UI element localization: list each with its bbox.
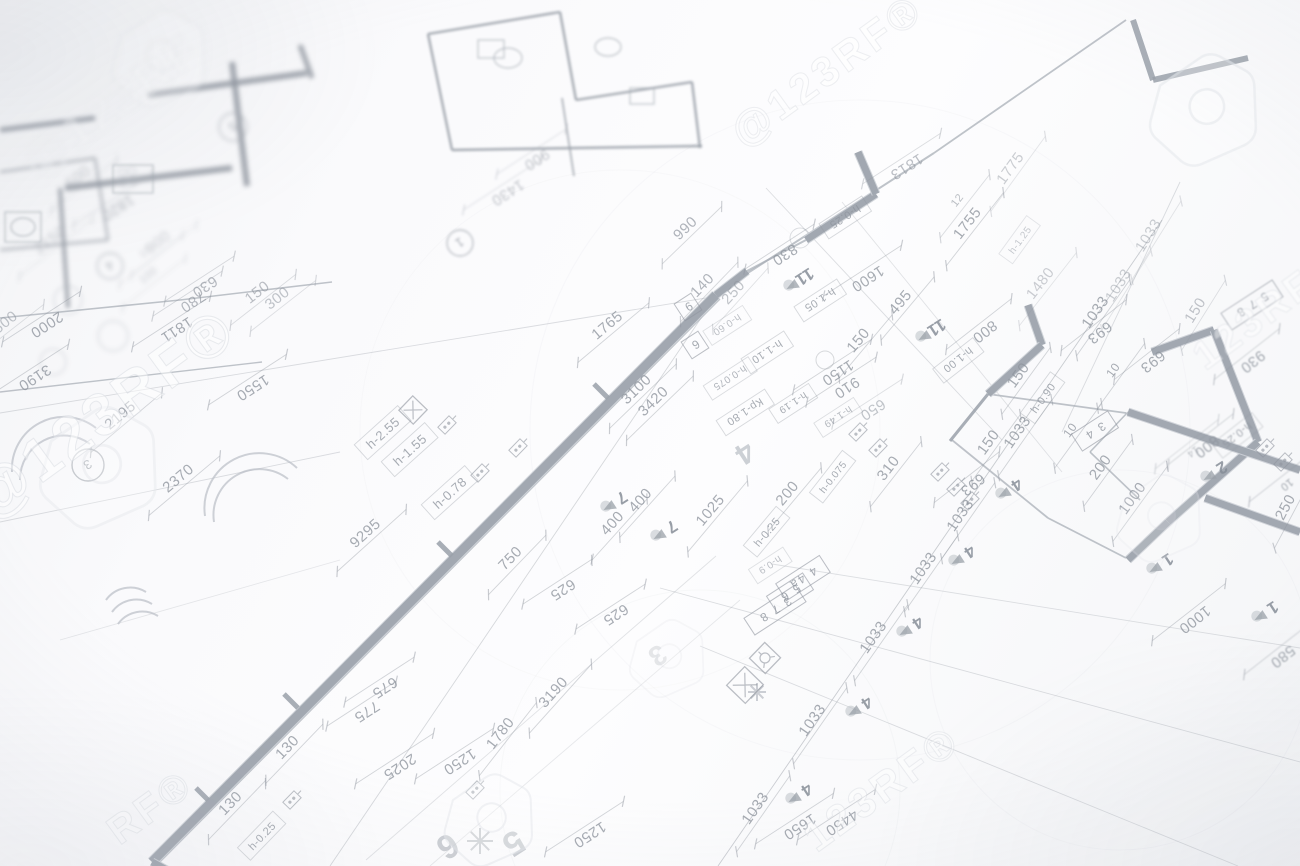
wall-thin: [934, 20, 1126, 153]
dimension-text: 10: [1278, 476, 1296, 494]
dimension-tick: [731, 846, 742, 857]
dimension-text: h-0.60: [710, 311, 742, 337]
axis-bubble-number: 1: [453, 234, 467, 251]
dimension-tick: [1239, 669, 1250, 680]
dimension-label: Кр-1.80: [716, 389, 774, 436]
dimension-tick: [38, 299, 49, 310]
dimension-text: 990: [670, 213, 701, 244]
wall: [452, 146, 702, 150]
dimension-tick: [788, 758, 799, 769]
dimension-text: h-1.05: [802, 285, 837, 314]
legend-box-text: 6: [688, 337, 703, 353]
dimension-tick: [1040, 131, 1051, 142]
dimension-tick: [1127, 434, 1138, 445]
dimension-tick: [63, 339, 74, 350]
socket-symbol-icon: [509, 435, 531, 457]
dimension-tick: [281, 349, 292, 360]
dimension-tick: [1107, 536, 1118, 547]
socket-lead: [524, 439, 527, 443]
construction-arc: [930, 470, 1300, 850]
socket-dot: [1261, 448, 1266, 453]
legend-box: 6: [681, 331, 709, 359]
dimension-text: h-0.075: [818, 459, 850, 495]
wall: [576, 82, 692, 100]
dimension-text: 800: [969, 317, 1000, 347]
dimension-tick: [929, 271, 940, 282]
socket-symbol-icon: [471, 460, 493, 482]
layer-watermarks: @123RF®@123RF®123RF®RF®: [0, 0, 1273, 866]
dimension-label: h-1.49: [814, 397, 863, 437]
dimension-text: 580: [1267, 642, 1298, 672]
dimension-label: h-0.9: [748, 547, 792, 584]
dimension-tick: [126, 270, 137, 281]
dimension-label: h-0.78: [421, 466, 478, 520]
watermark-text: RF®: [99, 762, 202, 853]
axis-bubble-number: 4: [103, 257, 117, 274]
dimension-text: 250: [718, 277, 748, 308]
watermark-brand-text: @123RF: [12, 23, 210, 187]
dimension-tick: [1071, 247, 1082, 258]
dimension-tick: [935, 232, 946, 243]
dimension-label: 2025: [350, 728, 446, 801]
dimension-tick: [339, 697, 350, 708]
socket-symbol-icon: [931, 459, 953, 481]
dimension-tick: [618, 796, 629, 807]
dimension-label: 3190: [513, 649, 597, 739]
fixture-circle: [128, 167, 136, 175]
dimension-tick: [994, 446, 1005, 457]
dimension-label: 580: [1239, 618, 1300, 691]
dimension-text: 200: [1086, 452, 1115, 483]
socket-dot: [476, 473, 481, 478]
dimension-tick: [68, 219, 79, 230]
socket-dot: [939, 468, 944, 473]
wall: [560, 12, 576, 100]
socket-lead: [864, 423, 867, 427]
dimension-label: 200: [752, 453, 827, 536]
socket-dot: [291, 796, 296, 801]
fan-box: [749, 642, 780, 673]
dimension-tick: [682, 546, 693, 557]
dimension-tick: [784, 770, 795, 781]
dimension-tick: [143, 510, 154, 521]
socket-dot: [288, 800, 293, 805]
dimension-tick: [985, 206, 996, 217]
dimension-label: 900: [117, 208, 202, 281]
socket-dot: [517, 444, 522, 449]
wall: [95, 158, 108, 240]
dimension-tick: [1147, 635, 1158, 646]
axis-bubble: 1: [447, 230, 473, 256]
axis-bubble: 4: [97, 253, 123, 279]
dimension-tick: [428, 728, 439, 739]
dimension-tick: [111, 154, 122, 165]
dimension-label: h-0.075: [703, 357, 757, 400]
flag-number: 4: [908, 612, 927, 633]
wall: [692, 82, 700, 148]
dimension-text: 150: [843, 325, 873, 356]
door-swing-arc: [112, 600, 152, 612]
socket-dot: [443, 425, 448, 430]
dimension-tick: [517, 599, 528, 610]
socket-lead: [1271, 439, 1274, 443]
dimension-tick: [217, 266, 228, 277]
socket-dot: [874, 448, 879, 453]
layer-construction-lines: [0, 100, 1300, 866]
dimension-label: 1765: [563, 287, 654, 369]
flag-marker: 1: [1248, 597, 1282, 628]
construction-arc: [816, 351, 834, 369]
dimension-tick: [191, 219, 202, 230]
dimension-label: h-1.25: [999, 216, 1040, 264]
socket-lead: [946, 463, 949, 467]
dimension-tick: [875, 334, 886, 345]
dimension-label: h-0.25: [237, 811, 285, 860]
fixture-ellipse: [595, 38, 621, 56]
dimension-text: 200: [772, 478, 802, 509]
dimension-label: 1780: [463, 688, 542, 781]
switch-symbol-icon: [399, 396, 427, 424]
flag-number: 4: [797, 779, 816, 800]
wall: [428, 12, 560, 34]
legend-box-text: 9: [681, 299, 696, 315]
socket-symbol-icon: [438, 412, 460, 434]
dimension-tick: [750, 838, 761, 849]
dimension-label: 1000: [1147, 578, 1240, 657]
legend-box: 3 4: [1072, 411, 1119, 451]
dimension-tick: [897, 374, 908, 385]
dimension-tick: [996, 409, 1007, 420]
dimension-tick: [117, 302, 128, 313]
dimension-text: 150: [1004, 360, 1033, 391]
switch-x: [733, 673, 758, 698]
dimension-line: [662, 207, 721, 264]
dimension-text: 775: [351, 697, 383, 726]
socket-dot: [479, 469, 484, 474]
dimension-tick: [410, 773, 421, 784]
dimension-tick: [849, 675, 860, 686]
flag-number: 4: [857, 692, 876, 713]
flag-marker: 11: [780, 264, 818, 298]
socket-dot: [514, 448, 519, 453]
construction-line: [842, 202, 1062, 472]
dimension-tick: [941, 344, 952, 355]
dimension-tick: [75, 286, 86, 297]
socket-dot: [877, 444, 882, 449]
fixture-circle: [98, 321, 128, 351]
door-swing-arc: [204, 453, 297, 516]
dimension-tick: [409, 652, 420, 663]
dimension-text: 750: [495, 543, 526, 574]
dimension-text: 693: [957, 470, 988, 500]
socket-symbol-icon: [869, 435, 891, 457]
dimension-label: h-1.10: [741, 331, 794, 374]
socket-lead: [298, 791, 301, 795]
dimension-text: 250: [1272, 492, 1299, 523]
dimension-tick: [46, 205, 57, 216]
blueprint-photo: 500215010900100182045@123RF 90014301 176…: [0, 0, 1300, 866]
dimension-label: 1033: [777, 674, 853, 769]
blueprint-canvas: 500215010900100182045@123RF 90014301 176…: [0, 0, 1300, 866]
dimension-tick: [871, 352, 882, 363]
dimension-label: 3100: [594, 348, 682, 434]
wall: [562, 98, 574, 176]
wall: [594, 384, 608, 398]
watermark-brand-text: 123RF®: [794, 716, 968, 860]
dimension-tick: [640, 579, 651, 590]
socket-lead: [1289, 453, 1292, 457]
construction-line: [1062, 182, 1180, 432]
dimension-label: 310: [854, 427, 927, 512]
legend-box-text: 3 4: [1082, 419, 1109, 443]
flag-marker: 4: [842, 692, 876, 723]
dimension-tick: [1045, 342, 1056, 353]
socket-lead: [486, 464, 489, 468]
dimension-tick: [245, 326, 256, 337]
dimension-label: 990: [647, 191, 727, 270]
dimension-label: 1033: [838, 591, 914, 686]
wall: [60, 188, 68, 308]
fixture-circle: [118, 168, 126, 176]
room-number-text: 4: [728, 434, 760, 471]
dimension-text: h-1.10: [749, 337, 784, 366]
dimension-tick: [742, 475, 753, 486]
room-number: 4: [728, 434, 760, 471]
dimension-tick: [1006, 293, 1017, 304]
dimension-tick: [935, 128, 946, 139]
socket-dot: [854, 432, 859, 437]
watermark-text: @123RF: [12, 23, 210, 187]
watermark-text: @123RF®: [721, 0, 931, 156]
dimension-text: 625: [547, 575, 579, 604]
flag-marker: 7: [647, 516, 681, 547]
socket-dot: [952, 487, 957, 492]
flag-number: 7: [613, 487, 631, 508]
dimension-tick: [1220, 578, 1231, 589]
dimension-label: 9295: [322, 493, 412, 577]
dimension-tick: [350, 778, 361, 789]
dimension-text: 495: [885, 287, 915, 318]
socket-lead: [453, 416, 456, 420]
dimension-tick: [180, 253, 191, 264]
wall: [950, 394, 988, 441]
dimension-tick: [1244, 496, 1255, 507]
dimension-tick: [458, 204, 469, 215]
dimension-tick: [1139, 338, 1150, 349]
dimension-tick: [540, 846, 551, 857]
dimension-tick: [1163, 459, 1174, 470]
dimension-tick: [929, 497, 940, 508]
construction-line: [330, 299, 714, 866]
wall: [152, 862, 196, 866]
dimension-tick: [572, 357, 583, 368]
dimension-text: h-1.49: [821, 403, 853, 429]
dimension-tick: [114, 279, 125, 290]
dimension-tick: [229, 251, 240, 262]
flag-marker: 11: [912, 315, 950, 349]
watermark-camera-logo-icon: [1134, 43, 1273, 175]
wall: [858, 152, 876, 194]
flag-marker: 4: [992, 474, 1026, 505]
wall: [428, 34, 452, 150]
dimension-tick: [1078, 501, 1089, 512]
dimension-tick: [1056, 345, 1067, 356]
socket-dot: [446, 421, 451, 426]
dimension-label: 250: [1257, 463, 1300, 553]
construction-line: [700, 646, 1238, 866]
door-swing-arc: [213, 469, 288, 522]
dimension-tick: [1071, 350, 1082, 361]
dimension-tick: [1220, 275, 1231, 286]
dimension-label: 1755: [930, 178, 1009, 271]
socket-lead: [884, 439, 887, 443]
compass-asterisk-icon: [748, 683, 766, 701]
dimension-text: 600: [0, 308, 21, 338]
flag-number: 4: [1007, 474, 1026, 495]
dimension-tick: [916, 436, 927, 447]
dimension-tick: [1014, 320, 1025, 331]
fixture-ellipse: [11, 218, 35, 236]
dimension-label: 1025: [672, 466, 754, 557]
watermark-camera-logo-icon: [619, 612, 716, 704]
switch-x: [404, 401, 423, 420]
dimension-text: h-1.25: [1007, 225, 1034, 257]
dimension-text: 150: [1181, 295, 1209, 327]
wall: [152, 295, 716, 862]
flag-marker: 4: [782, 779, 816, 810]
dimension-text: h-0.90: [1029, 381, 1059, 416]
wall: [1133, 20, 1153, 80]
dimension-tick: [1228, 408, 1239, 419]
dimension-label: 1250: [540, 796, 636, 866]
watermark-brand-text: RF®: [99, 762, 202, 853]
dimension-tick: [290, 269, 301, 280]
dimension-label: 150: [985, 334, 1056, 420]
door-swing-arc: [106, 588, 146, 600]
dimension-label: h-0.075: [809, 450, 855, 503]
legend-box-text: 3 7 8: [756, 594, 794, 626]
flag-marker: 4: [893, 612, 927, 643]
dimension-text: h-0.25: [827, 202, 862, 231]
dimension-tick: [865, 501, 876, 512]
wall: [284, 694, 298, 708]
wall: [1028, 305, 1042, 345]
dimension-tick: [1176, 195, 1187, 206]
flag-marker: 4: [945, 541, 979, 572]
wall-thin: [1048, 518, 1126, 558]
fan-symbol-icon: [749, 642, 780, 673]
socket-dot: [1264, 444, 1269, 449]
watermark-text: 123RF®: [794, 716, 968, 860]
flag-number: 7: [663, 516, 681, 537]
dimension-tick: [896, 240, 907, 251]
dimension-tick: [214, 450, 225, 461]
dimension-line: [1098, 344, 1145, 409]
flag-number: 4: [960, 541, 979, 562]
dimension-label: h-0.60: [703, 305, 752, 345]
dimension-label: 693: [1109, 323, 1194, 396]
dimension-tick: [147, 311, 158, 322]
socket-dot: [857, 428, 862, 433]
dimension-tick: [491, 169, 502, 180]
dimension-tick: [1213, 414, 1224, 425]
watermark-brand-text: @123RF®: [721, 0, 931, 156]
flag-number: 1: [1264, 597, 1282, 618]
socket-symbol-icon: [283, 787, 305, 809]
dimension-tick: [203, 399, 214, 410]
wall: [438, 542, 452, 556]
construction-line: [772, 564, 1300, 648]
socket-dot: [936, 472, 941, 477]
dimension-label: 900: [491, 124, 579, 192]
dimension-tick: [941, 260, 952, 271]
dimension-tick: [14, 271, 25, 282]
dimension-text: 12: [949, 192, 967, 210]
construction-line: [60, 560, 340, 640]
dimension-label: 1775: [974, 123, 1051, 217]
